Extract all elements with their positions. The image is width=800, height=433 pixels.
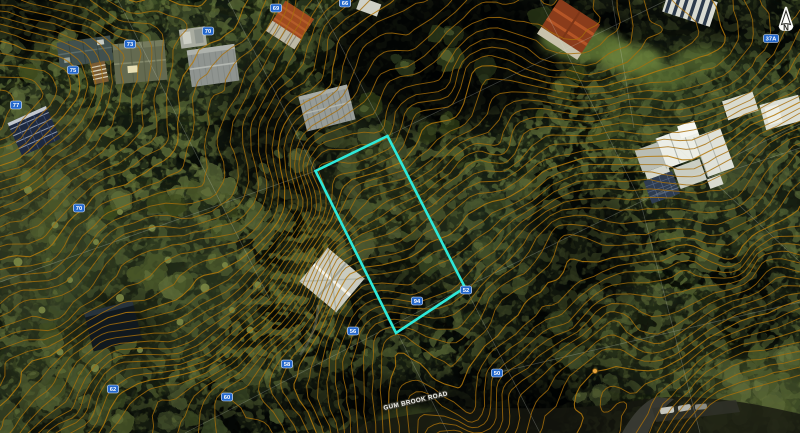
svg-text:62: 62	[110, 387, 116, 393]
svg-text:75: 75	[70, 68, 77, 74]
svg-text:70: 70	[76, 206, 82, 212]
svg-text:52: 52	[463, 288, 469, 294]
svg-text:50: 50	[494, 371, 500, 377]
svg-text:N: N	[783, 24, 789, 33]
svg-text:58: 58	[284, 362, 291, 368]
svg-text:94: 94	[414, 299, 421, 305]
svg-text:60: 60	[224, 395, 230, 401]
svg-text:37A: 37A	[766, 37, 777, 43]
svg-text:73: 73	[127, 42, 134, 48]
svg-text:77: 77	[13, 103, 19, 109]
svg-text:70: 70	[205, 29, 211, 35]
svg-text:66: 66	[342, 1, 349, 7]
svg-text:56: 56	[350, 329, 357, 335]
svg-text:69: 69	[273, 6, 280, 12]
